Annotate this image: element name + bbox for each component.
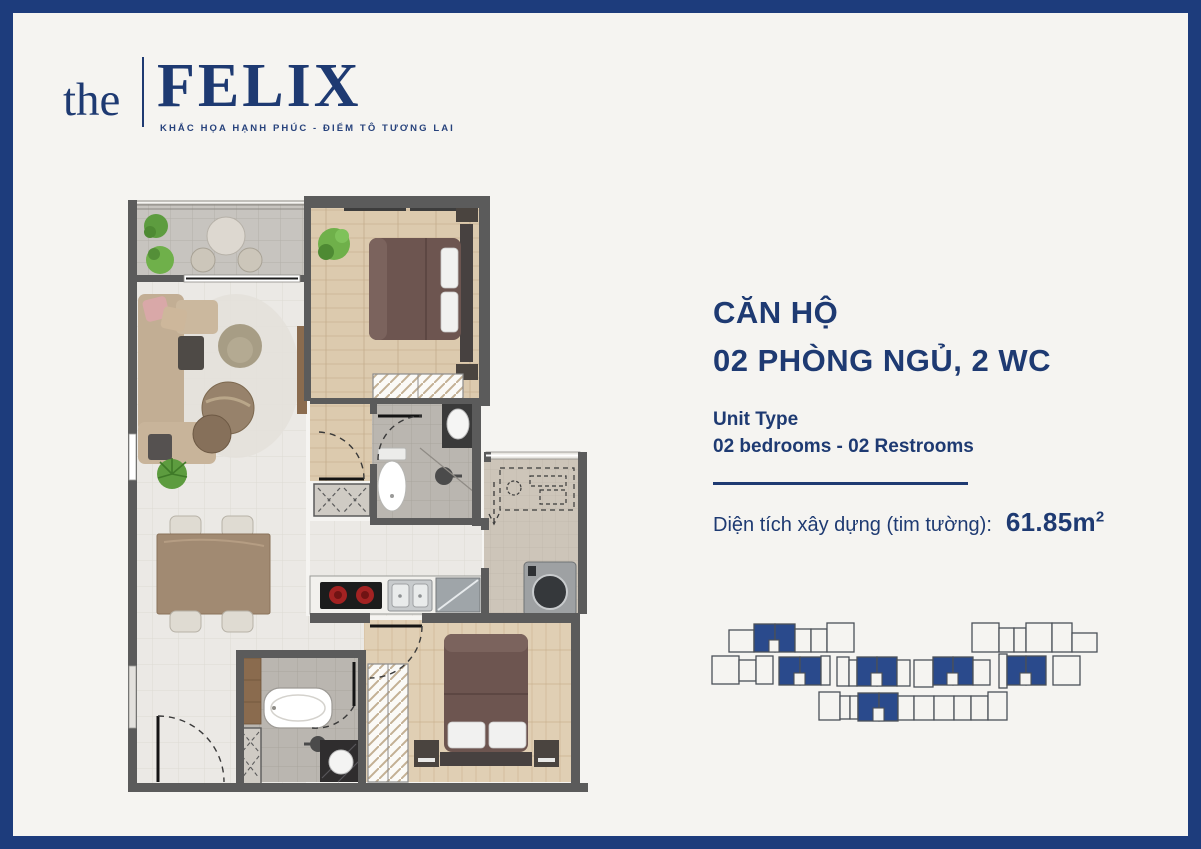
bedroom-1-nook-floor [310,401,372,481]
logo-divider-bar [142,57,144,127]
keyplan-unit [811,629,827,652]
keyplan-unit [1072,633,1097,652]
shaft-hatch [314,484,370,516]
keyplan-unit [712,656,739,684]
keyplan-unit-notch [871,673,882,686]
keyplan-unit [999,628,1014,652]
kitchen-counter [310,576,482,614]
keyplan-unit [827,623,854,652]
nightstand [456,206,478,222]
nightstand [534,740,559,767]
keyplan-unit [914,696,934,720]
keyplan-unit [1052,623,1072,652]
keyplan-unit [954,696,971,720]
area-value: 61.85m2 [1006,507,1105,538]
floor-plan [126,196,593,803]
keyplan-unit [850,696,858,719]
brand-logo: the FELIX KHẮC HỌA HẠNH PHÚC - ĐIỂM TÔ T… [61,51,401,146]
wood-cabinet [242,658,261,724]
keyplan-unit [849,660,857,686]
area-superscript: 2 [1096,509,1105,526]
coffee-table-small [193,415,231,453]
keyplan-unit [739,660,756,681]
keyplan-unit [988,692,1007,720]
keyplan-unit [1026,623,1052,652]
keyplan-unit [840,696,850,719]
keyplan-unit-notch [947,673,958,685]
keyplan-unit [1014,628,1026,652]
keyplan-unit [837,657,849,686]
keyplan-unit [819,692,840,720]
keyplan-unit [1053,656,1080,685]
logo-prefix: the [63,77,120,124]
keyplan-unit-notch [794,673,805,685]
unit-title-line1: CĂN HỘ [713,289,1183,337]
keyplan-unit-notch [1020,673,1031,685]
logo-wordmark: FELIX [157,55,361,117]
pillow [441,248,458,288]
unit-type-value: 02 bedrooms - 02 Restrooms [713,434,1183,461]
keyplan-unit [914,660,933,687]
unit-type-label: Unit Type [713,407,1183,434]
area-label: Diện tích xây dựng (tim tường): [713,514,992,537]
keyplan [706,611,1106,733]
balcony-table [207,217,245,255]
balcony-chair [238,248,262,272]
keyplan-unit [729,630,754,652]
logo-tagline: KHẮC HỌA HẠNH PHÚC - ĐIỂM TÔ TƯƠNG LAI [160,123,455,134]
balcony-chair [191,248,215,272]
keyplan-unit [897,660,910,686]
brochure-page: the FELIX KHẮC HỌA HẠNH PHÚC - ĐIỂM TÔ T… [0,0,1201,849]
pillow [448,722,485,748]
keyplan-unit-notch [873,708,884,721]
keyplan-unit [756,656,773,684]
keyplan-unit [972,623,999,652]
keyplan-unit [795,629,811,652]
toilet [378,448,406,460]
bed-1-headboard [460,224,473,362]
keyplan-unit [973,660,990,685]
keyplan-unit [999,654,1007,688]
dining-chair [222,611,253,632]
keyplan-unit-notch [769,640,779,652]
keyplan-unit [898,696,914,720]
pillow [441,292,458,332]
pillow [489,722,526,748]
dining-chair [170,611,201,632]
keyplan-unit [934,696,954,720]
nightstand [414,740,439,767]
unit-info: CĂN HỘ 02 PHÒNG NGỦ, 2 WC Unit Type 02 b… [713,289,1183,538]
unit-title-line2: 02 PHÒNG NGỦ, 2 WC [713,337,1183,385]
dining-table [157,534,270,614]
keyplan-unit [971,696,988,720]
bed-2-headboard [440,752,532,766]
keyplan-unit [821,656,830,685]
info-divider-line [713,482,968,485]
